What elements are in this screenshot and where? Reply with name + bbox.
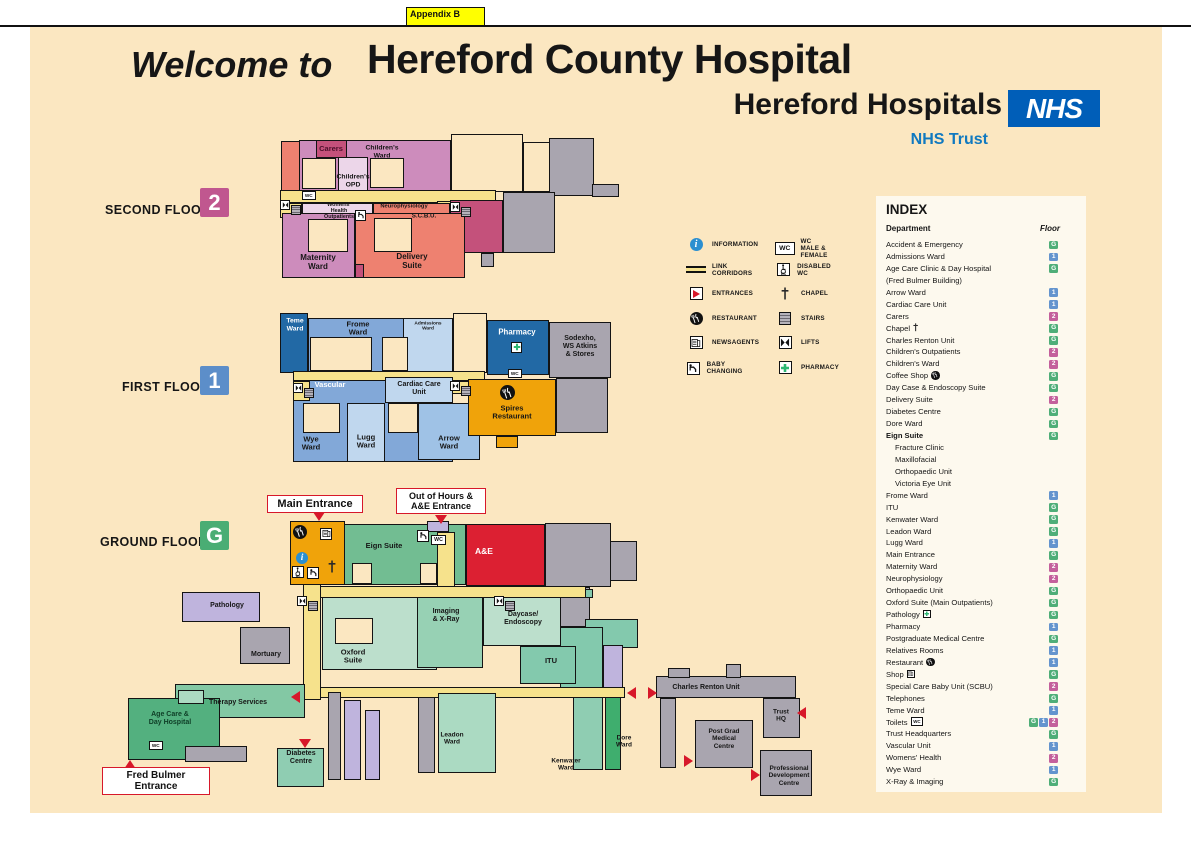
wc-icon: WC	[508, 369, 522, 378]
map-label: Lugg Ward	[357, 434, 375, 451]
index-row: Orthopaedic UnitG	[886, 585, 1086, 597]
index-row-name: Toilets	[886, 718, 908, 727]
legend-icon-cell	[686, 362, 701, 375]
map-label: Post Grad Medical Centre	[708, 728, 739, 750]
stairs-icon	[291, 205, 301, 215]
index-row: Diabetes CentreG	[886, 406, 1086, 418]
floor-badge-G: G	[1049, 551, 1058, 560]
legend-icon-cell	[775, 312, 795, 325]
legend-label: PHARMACY	[801, 364, 839, 371]
disabled-wc-icon: WC	[777, 263, 790, 276]
index-row: Dore WardG	[886, 418, 1086, 430]
map-icon-holder	[291, 195, 301, 215]
legend-label: NEWSAGENTS	[712, 339, 759, 346]
index-row: Kenwater WardG	[886, 514, 1086, 526]
legend-label: BABY CHANGING	[707, 361, 748, 375]
map-icon-holder	[461, 197, 471, 217]
floor-label-1: FIRST FLOOR	[122, 380, 210, 394]
appendix-tag: Appendix B	[406, 7, 485, 26]
wc-icon: WC	[775, 242, 795, 255]
legend-item-lifts: LIFTS	[775, 336, 820, 349]
map-icon-holder	[293, 378, 303, 396]
floor-badge-1: 1	[1049, 288, 1058, 297]
legend-label: LINK CORRIDORS	[712, 263, 752, 277]
map-block	[668, 668, 690, 678]
legend-icon-cell	[686, 312, 706, 325]
map-block	[605, 697, 621, 770]
stairs-icon	[779, 312, 791, 325]
map-label: Dore Ward	[616, 735, 632, 750]
index-row: Cardiac Care Unit1	[886, 299, 1086, 311]
legend-label: DISABLED WC	[797, 263, 835, 277]
legend-label: INFORMATION	[712, 241, 758, 248]
index-row-name: Delivery Suite	[886, 395, 933, 404]
entrance-label: Out of Hours & A&E Entrance	[396, 488, 486, 514]
floor-badge-1: 1	[1049, 742, 1058, 751]
index-row: Maternity Ward2	[886, 561, 1086, 573]
index-row-badges: G	[1049, 241, 1058, 250]
floor-badge-G: G	[1049, 264, 1058, 273]
index-row-badges: 2	[1049, 348, 1058, 357]
index-row-badges: G	[1049, 432, 1058, 441]
index-row-name: Accident & Emergency	[886, 240, 963, 249]
map-icon-holder	[494, 591, 504, 609]
index-row-name: Chapel	[886, 324, 910, 333]
map-label: Admissions Ward	[414, 322, 441, 333]
entrance-arrow	[648, 687, 657, 699]
legend-label: CHAPEL	[801, 290, 828, 297]
map-icon-holder	[461, 376, 471, 396]
map-label: Pharmacy	[498, 329, 535, 338]
map-block	[328, 692, 341, 780]
index-row: Special Care Baby Unit (SCBU)2	[886, 681, 1086, 693]
index-row: Orthopaedic Unit	[886, 466, 1086, 478]
index-row: Accident & EmergencyG	[886, 239, 1086, 251]
map-icon-holder	[417, 527, 429, 545]
nhs-logo: NHS	[1008, 90, 1100, 127]
svg-text:WC: WC	[296, 574, 302, 577]
legend-item-wc: WCWC MALE & FEMALE	[775, 238, 828, 259]
index-row-name: X-Ray & Imaging	[886, 777, 943, 786]
map-block	[496, 436, 518, 448]
map-label: Delivery Suite	[396, 252, 427, 270]
index-row-badges: 2	[1049, 312, 1058, 321]
entrance-arrow	[299, 739, 311, 748]
legend-icon-cell	[686, 336, 706, 349]
index-row: Eign SuiteG	[886, 430, 1086, 442]
lifts-icon	[450, 381, 460, 391]
index-row: Lugg Ward1	[886, 537, 1086, 549]
map-block	[365, 710, 380, 780]
index-row-badges: G12	[1029, 718, 1058, 727]
index-row-name: Wye Ward	[886, 765, 921, 774]
map-icon-holder: WC	[149, 734, 163, 752]
map-icon-holder: WC	[292, 564, 304, 582]
index-row-badges: G	[1049, 527, 1058, 536]
index-row-name: Trust Headquarters	[886, 729, 951, 738]
floor-badge-1: 1	[1049, 623, 1058, 632]
index-row: Main EntranceG	[886, 549, 1086, 561]
index-row: Pharmacy1	[886, 621, 1086, 633]
map-block	[603, 645, 623, 688]
legend-item-info: iINFORMATION	[686, 238, 758, 251]
index-row: ShopG	[886, 669, 1086, 681]
pharmacy-cross-icon	[923, 610, 932, 619]
index-row-badges: 2	[1049, 360, 1058, 369]
floor-badge-1: 1	[1049, 646, 1058, 655]
nhs-trust-caption: NHS Trust	[858, 131, 988, 149]
legend-label: STAIRS	[801, 315, 825, 322]
index-row: Relatives Rooms1	[886, 645, 1086, 657]
pharmacy-cross-icon	[779, 361, 792, 374]
index-row: Wye Ward1	[886, 764, 1086, 776]
map-icon-holder	[505, 591, 515, 611]
index-row: Vascular Unit1	[886, 740, 1086, 752]
index-row-badges: 1	[1049, 658, 1058, 667]
svg-text:WC: WC	[780, 272, 786, 275]
legend-label: ENTRANCES	[712, 290, 753, 297]
index-row-name: Age Care Clinic & Day Hospital (Fred Bul…	[886, 264, 991, 285]
map-block	[451, 134, 523, 192]
legend-label: LIFTS	[801, 339, 820, 346]
index-row: Delivery Suite2	[886, 394, 1086, 406]
index-row-name: Shop	[886, 670, 904, 679]
floor-badge-G: G	[1049, 372, 1058, 381]
map-block	[382, 337, 408, 371]
index-row-name: Pharmacy	[886, 622, 920, 631]
legend-icon-cell	[686, 287, 706, 300]
map-block	[592, 184, 619, 197]
legend-icon-cell	[775, 287, 795, 300]
map-label: Children's Ward	[366, 144, 399, 159]
map-label: Imaging & X-Ray	[433, 608, 460, 624]
index-row-name: Orthopaedic Unit	[886, 586, 943, 595]
index-row-badges: 2	[1049, 575, 1058, 584]
index-row-badges: G	[1049, 264, 1058, 273]
index-row-name: Postgraduate Medical Centre	[886, 634, 984, 643]
floor-badge-G: G	[1049, 778, 1058, 787]
index-row-badges: G	[1049, 420, 1058, 429]
floor-badge-1: 1	[1049, 300, 1058, 309]
lifts-icon	[280, 200, 290, 210]
index-row-badges: 1	[1049, 288, 1058, 297]
index-col-floor: Floor	[1040, 224, 1060, 233]
legend-icon-cell	[775, 361, 795, 374]
index-row-badges: 2	[1049, 563, 1058, 572]
map-block	[556, 378, 608, 433]
map-icon-holder	[280, 195, 290, 213]
index-row-badges: 1	[1049, 300, 1058, 309]
index-row-name: Frome Ward	[886, 491, 928, 500]
index-row-name: Teme Ward	[886, 706, 925, 715]
legend-icon-cell: WC	[775, 242, 795, 255]
map-label: Trust HQ	[773, 709, 789, 724]
index-row-name: Orthopaedic Unit	[895, 467, 952, 476]
hospital-map-poster: Appendix B Welcome to Hereford County Ho…	[0, 0, 1191, 842]
index-row-badges: G	[1049, 384, 1058, 393]
map-block	[185, 746, 247, 762]
map-block	[660, 698, 676, 768]
index-row: Restaurant1	[886, 657, 1086, 669]
map-icon-holder	[297, 591, 307, 609]
floor-badge-1: 1	[1049, 491, 1058, 500]
map-block	[370, 158, 404, 188]
map-label: Cardiac Care Unit	[397, 381, 440, 397]
lifts-icon	[779, 336, 792, 349]
index-row: ToiletsWCG12	[886, 717, 1086, 729]
index-row-name: Charles Renton Unit	[886, 336, 954, 345]
map-block	[726, 664, 741, 678]
index-row-badges: G	[1049, 599, 1058, 608]
map-block	[303, 403, 340, 433]
index-row: Postgraduate Medical CentreG	[886, 633, 1086, 645]
stairs-icon	[505, 601, 515, 611]
floor-badge-G: G	[1049, 503, 1058, 512]
index-row: Coffee ShopG	[886, 370, 1086, 382]
index-row-name: Eign Suite	[886, 431, 923, 440]
index-row: Leadon WardG	[886, 526, 1086, 538]
map-icon-holder	[450, 197, 460, 215]
index-row-name: Maxillofacial	[895, 455, 936, 464]
restaurant-icon	[690, 312, 703, 325]
index-row-badges: G	[1049, 778, 1058, 787]
map-icon-holder: WC	[508, 362, 522, 380]
map-label: Carers	[319, 145, 343, 153]
map-label: Spires Restaurant	[492, 405, 531, 422]
floor-badge-G: G	[1049, 336, 1058, 345]
map-label: Vascular	[315, 381, 346, 389]
floor-badge-G: G	[1049, 420, 1058, 429]
legend-label: WC MALE & FEMALE	[801, 238, 829, 259]
floor-badge-2: 2	[1049, 682, 1058, 691]
index-row-badges: G	[1049, 324, 1058, 333]
legend-item-pharmacy: PHARMACY	[775, 361, 839, 374]
index-row-name: Telephones	[886, 694, 925, 703]
lifts-icon	[494, 596, 504, 606]
map-label: Kenwater Ward	[551, 758, 580, 773]
index-row-badges: 1	[1049, 539, 1058, 548]
legend-item-restaurant: RESTAURANT	[686, 312, 757, 325]
floor-badge-2: 2	[1049, 348, 1058, 357]
top-rule	[0, 25, 1191, 27]
floor-badge-G: G	[1049, 515, 1058, 524]
lifts-icon	[293, 383, 303, 393]
map-label: Professional Development Centre	[769, 765, 810, 787]
map-icon-holder	[320, 525, 332, 543]
map-label: Oxford Suite	[341, 649, 366, 666]
floor-badge-G: G	[1049, 587, 1058, 596]
floor-badge-1: 1	[1049, 766, 1058, 775]
map-icon-holder	[308, 591, 318, 611]
index-row-name: Leadon Ward	[886, 527, 931, 536]
index-row-badges: G	[1049, 587, 1058, 596]
floor-badge-1: 1	[1049, 706, 1058, 715]
index-row-name: Oxford Suite (Main Outpatients)	[886, 598, 993, 607]
chapel-cross-icon	[781, 287, 789, 300]
legend-label: RESTAURANT	[712, 315, 757, 322]
map-label: Leadon Ward	[440, 732, 463, 747]
index-row-badges: 1	[1049, 491, 1058, 500]
index-row-badges: 2	[1049, 682, 1058, 691]
map-block	[545, 523, 611, 587]
index-row-name: Special Care Baby Unit (SCBU)	[886, 682, 993, 691]
map-block	[549, 138, 594, 196]
map-label: Charles Renton Unit	[672, 684, 739, 692]
index-row: Day Case & Endoscopy SuiteG	[886, 382, 1086, 394]
index-row-badges: 2	[1049, 396, 1058, 405]
entrance-label: Fred Bulmer Entrance	[102, 767, 210, 795]
entrance-arrow	[627, 687, 636, 699]
index-row-badges: 1	[1049, 766, 1058, 775]
index-row-badges: 1	[1049, 623, 1058, 632]
floor-badge-1: 1	[1039, 718, 1048, 727]
map-block	[310, 337, 372, 371]
restaurant-icon	[500, 385, 515, 400]
legend-item-entrance: ENTRANCES	[686, 287, 753, 300]
index-row: TelephonesG	[886, 693, 1086, 705]
index-row-badges: G	[1049, 730, 1058, 739]
entrance-arrow	[435, 515, 447, 524]
stairs-icon	[304, 388, 314, 398]
map-icon-holder: i	[296, 547, 308, 565]
floor-badge-G: G	[1049, 241, 1058, 250]
floor-badge-G: G	[1049, 635, 1058, 644]
entrance-arrow	[313, 512, 325, 521]
map-label: Therapy Services	[209, 699, 267, 707]
index-row-badges: G	[1049, 408, 1058, 417]
floor-badge-2: 2	[1049, 312, 1058, 321]
map-label: Maternity Ward	[300, 253, 336, 271]
map-block	[503, 192, 555, 253]
index-rows: Accident & EmergencyGAdmissions Ward1Age…	[886, 239, 1086, 788]
entrance-label: Main Entrance	[267, 495, 363, 513]
index-row-badges: G	[1049, 611, 1058, 620]
chapel-cross-icon	[913, 323, 918, 332]
map-icon-holder	[355, 206, 366, 224]
legend-icon-cell: i	[686, 238, 706, 251]
newsagent-icon	[320, 528, 332, 540]
index-row-badges: 1	[1049, 253, 1058, 262]
page-title: Hereford County Hospital	[367, 36, 852, 83]
map-label: Neurophysiology	[380, 204, 427, 211]
index-row: Oxford Suite (Main Outpatients)G	[886, 597, 1086, 609]
floor-label-2: SECOND FLOOR	[105, 203, 211, 217]
map-block	[420, 563, 437, 584]
floor-badge-G: G	[1049, 694, 1058, 703]
wc-icon: WC	[431, 535, 446, 545]
map-label: Arrow Ward	[438, 435, 460, 452]
index-title: INDEX	[886, 202, 1086, 217]
index-row: PathologyG	[886, 609, 1086, 621]
map-label: Womens' Health Outpatients	[324, 202, 354, 220]
entrance-arrow	[291, 691, 300, 703]
baby-changing-icon	[417, 530, 429, 542]
restaurant-icon	[931, 371, 940, 380]
map-icon-holder	[511, 338, 522, 356]
index-row: Womens' Health2	[886, 752, 1086, 764]
map-block	[178, 690, 204, 704]
map-icon-holder	[293, 524, 307, 542]
index-row-badges: 1	[1049, 742, 1058, 751]
legend-item-corridor: LINK CORRIDORS	[686, 263, 752, 277]
legend-icon-cell	[775, 336, 795, 349]
baby-changing-icon	[307, 567, 319, 579]
floor-badge-1: 1	[1049, 253, 1058, 262]
index-row: Age Care Clinic & Day Hospital (Fred Bul…	[886, 263, 1086, 287]
map-label: Eign Suite	[366, 542, 403, 550]
map-icon-holder: WC	[431, 528, 446, 546]
floor-badge-G: G	[1049, 527, 1058, 536]
map-block	[417, 590, 483, 668]
index-row-name: Neurophysiology	[886, 574, 943, 583]
chapel-cross-icon	[328, 560, 336, 573]
index-row-name: Kenwater Ward	[886, 515, 938, 524]
index-row: Carers2	[886, 311, 1086, 323]
index-row-badges: 2	[1049, 754, 1058, 763]
floor-badge-G: G	[1049, 599, 1058, 608]
floor-badge-2: 2	[1049, 563, 1058, 572]
index-row-name: Womens' Health	[886, 753, 941, 762]
map-block	[374, 218, 412, 252]
map-block	[355, 264, 364, 278]
map-label: Age Care & Day Hospital	[149, 711, 191, 727]
index-row: Neurophysiology2	[886, 573, 1086, 585]
map-block	[453, 313, 487, 373]
index-row-name: Dore Ward	[886, 419, 922, 428]
map-block	[335, 618, 373, 644]
floor-badge-G: G	[1049, 611, 1058, 620]
map-icon-holder	[500, 385, 515, 403]
legend-item-disabled: WCDISABLED WC	[775, 263, 835, 277]
index-row: ChapelG	[886, 323, 1086, 335]
disabled-wc-icon: WC	[292, 566, 304, 578]
floor-badge-2: 2	[1049, 754, 1058, 763]
index-row-name: Pathology	[886, 610, 920, 619]
floor-badge-G: G	[1049, 432, 1058, 441]
legend-item-baby: BABY CHANGING	[686, 361, 748, 375]
index-row-badges: G	[1049, 694, 1058, 703]
index-row-badges: G	[1049, 336, 1058, 345]
baby-changing-icon	[687, 362, 700, 375]
index-row-name: Lugg Ward	[886, 538, 923, 547]
map-block	[320, 586, 586, 598]
information-icon: i	[296, 552, 308, 564]
floor-badge-G: G	[1049, 408, 1058, 417]
newsagent-icon	[690, 336, 703, 349]
restaurant-icon	[293, 525, 307, 539]
index-row: Children's Outpatients2	[886, 346, 1086, 358]
stairs-icon	[308, 601, 318, 611]
index-row-name: Diabetes Centre	[886, 407, 941, 416]
map-icon-holder	[328, 560, 336, 578]
index-row: Trust HeadquartersG	[886, 728, 1086, 740]
legend-item-chapel: CHAPEL	[775, 287, 828, 300]
index-row: Children's Ward2	[886, 358, 1086, 370]
map-icon-holder	[307, 564, 319, 582]
lifts-icon	[297, 596, 307, 606]
link-corridor-swatch	[686, 266, 706, 273]
map-label: S.C.B.U.	[412, 213, 436, 220]
map-block	[610, 541, 637, 581]
map-icon-holder	[304, 378, 314, 398]
pharmacy-cross-icon	[511, 342, 522, 353]
wc-icon: WC	[911, 717, 924, 726]
legend-item-newsagent: NEWSAGENTS	[686, 336, 759, 349]
index-row-badges: G	[1049, 635, 1058, 644]
entrance-arrow	[751, 769, 760, 781]
map-label: Daycase/ Endoscopy	[504, 611, 542, 627]
index-row-badges: G	[1049, 503, 1058, 512]
